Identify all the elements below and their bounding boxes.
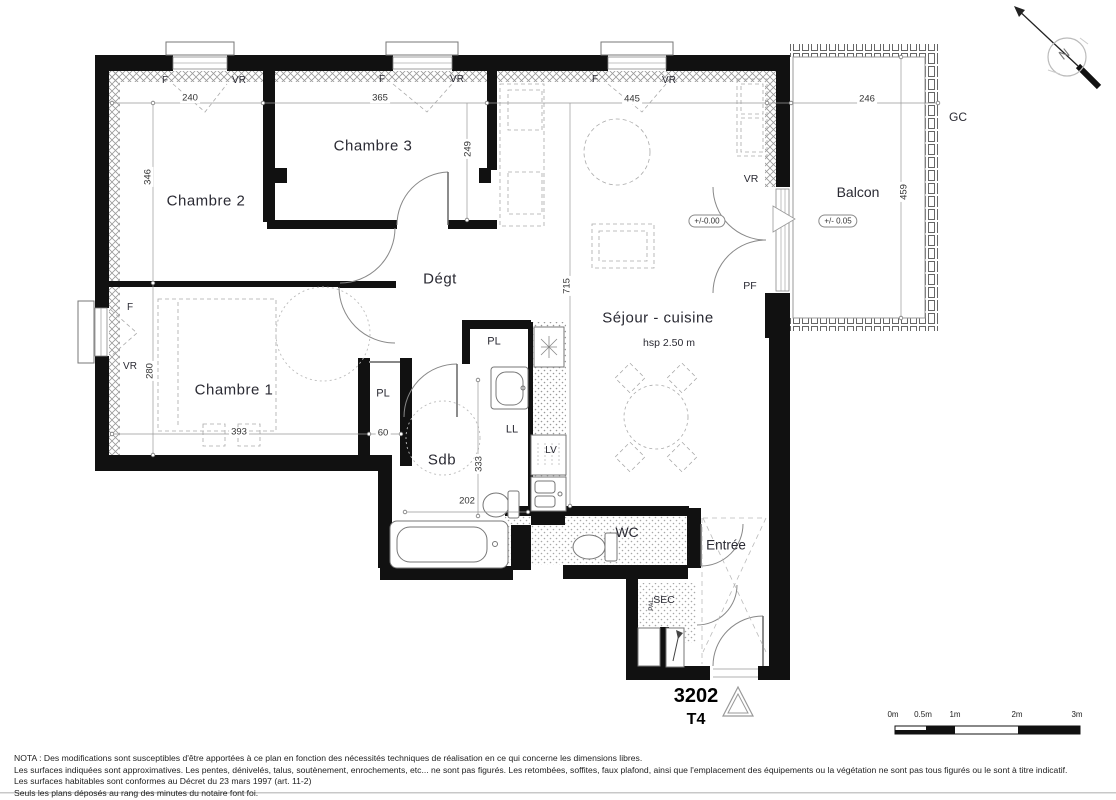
dimension-249: 249: [463, 139, 473, 159]
dimension-240: 240: [180, 93, 200, 103]
scale-label-2m: 2m: [1011, 711, 1022, 719]
ceiling-height-label: hsp 2.50 m: [643, 338, 695, 349]
note-line: NOTA : Des modifications sont susceptibl…: [14, 753, 1067, 765]
window-label-f: F: [592, 75, 598, 85]
room-label-entree: Entrée: [706, 538, 746, 552]
window-label-f: F: [379, 75, 385, 85]
appliance-label-lave-linge: LL: [506, 425, 518, 436]
window-label-f: F: [127, 303, 133, 313]
room-label-chambre-3: Chambre 3: [334, 139, 413, 154]
room-label-sec: SEC: [653, 595, 675, 606]
room-label-sdb: Sdb: [428, 453, 456, 468]
note-line: Les surfaces habitables sont conformes a…: [14, 776, 1067, 788]
window-label-vr: VR: [450, 75, 464, 85]
scale-label-05m: 0.5m: [914, 711, 932, 719]
room-label-degagement: Dégt: [423, 272, 457, 287]
level-badge-interior: +/-0.00: [688, 215, 725, 228]
window-label-vr: VR: [662, 76, 676, 86]
dimension-280: 280: [145, 361, 155, 381]
door-label-pf: PF: [743, 281, 756, 292]
closet-label-pl-sdb: PL: [487, 337, 500, 348]
dimension-365: 365: [370, 93, 390, 103]
dimension-246: 246: [857, 94, 877, 104]
closet-label-pl-chambre1: PL: [376, 389, 389, 400]
window-label-vr: VR: [123, 362, 137, 372]
floorplan-page: Chambre 2 Chambre 3 Chambre 1 Dégt Séjou…: [0, 0, 1116, 800]
room-label-wc: WC: [615, 525, 638, 539]
room-label-sejour-cuisine: Séjour - cuisine: [602, 311, 713, 326]
room-label-palier: PAL.: [649, 597, 656, 611]
level-badge-balcony: +/- 0.05: [818, 215, 857, 228]
window-label-f: F: [162, 76, 168, 86]
dimension-393: 393: [229, 427, 249, 437]
appliance-label-lave-vaisselle: LV: [545, 446, 557, 456]
window-label-vr: VR: [232, 76, 246, 86]
dimension-715: 715: [562, 276, 572, 296]
note-line: Seuls les plans déposés au rang des minu…: [14, 788, 1067, 800]
door-label-vr: VR: [744, 174, 759, 185]
notes-block: NOTA : Des modifications sont susceptibl…: [14, 753, 1067, 799]
room-label-chambre-1: Chambre 1: [195, 383, 274, 398]
dimension-333: 333: [474, 454, 484, 474]
plan-number: 3202: [674, 686, 719, 706]
label-gc: GC: [949, 111, 967, 123]
scale-label-3m: 3m: [1071, 711, 1082, 719]
note-line: Les surfaces indiquées sont approximativ…: [14, 765, 1067, 777]
dimension-202: 202: [457, 496, 477, 506]
room-label-chambre-2: Chambre 2: [167, 194, 246, 209]
room-label-balcon: Balcon: [837, 185, 880, 199]
dimension-459: 459: [899, 182, 909, 202]
scale-label-1m: 1m: [949, 711, 960, 719]
dimension-445: 445: [622, 94, 642, 104]
scale-label-0m: 0m: [887, 711, 898, 719]
dimension-346: 346: [143, 167, 153, 187]
plan-type: T4: [687, 712, 706, 728]
dimension-60: 60: [376, 428, 391, 438]
